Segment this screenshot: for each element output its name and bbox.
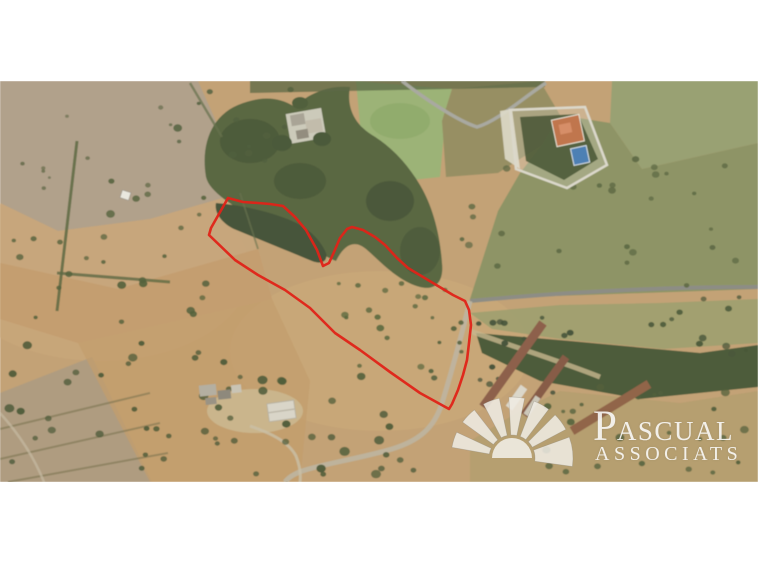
- swimming-pool: [571, 146, 590, 166]
- top-white-margin: [0, 0, 758, 81]
- aerial-photo: PASCUAL ASSOCIATS: [0, 81, 758, 482]
- white-farm-barn: [267, 400, 296, 422]
- watermark-brand-subtitle: ASSOCIATS: [595, 444, 742, 464]
- watermark-brand-name: PASCUAL: [593, 405, 734, 448]
- bottom-white-margin: [0, 482, 758, 564]
- watermark-name-rest: ASCUAL: [617, 416, 734, 446]
- screenshot-root: PASCUAL ASSOCIATS: [0, 0, 758, 564]
- villa-house: [551, 114, 584, 146]
